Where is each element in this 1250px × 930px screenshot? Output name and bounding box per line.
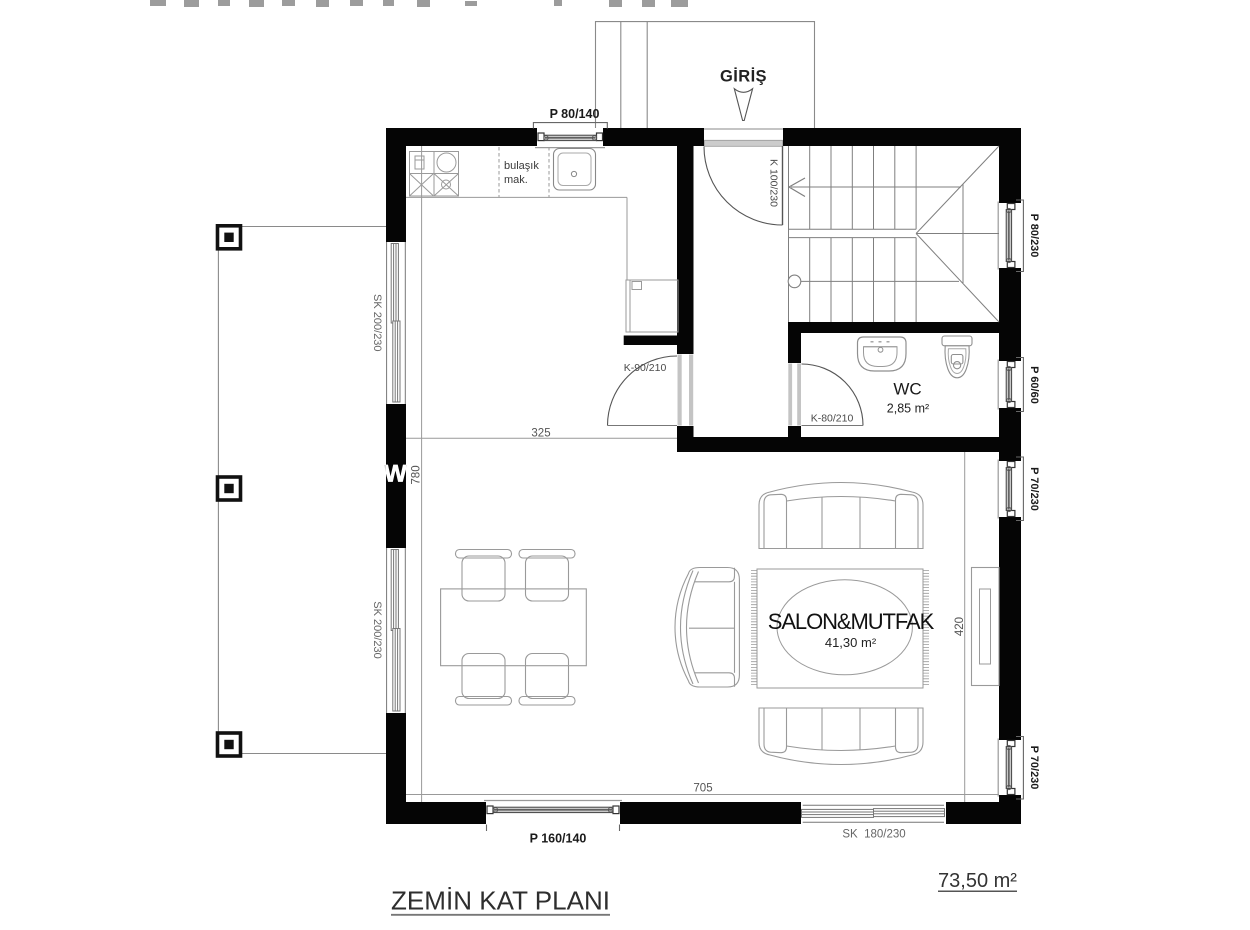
svg-text:K-80/210: K-80/210 xyxy=(811,413,854,425)
svg-text:41,30 m²: 41,30 m² xyxy=(825,635,877,650)
svg-text:SK 200/230: SK 200/230 xyxy=(371,294,383,352)
svg-text:SALON&MUTFAK: SALON&MUTFAK xyxy=(768,609,935,634)
svg-text:GİRİŞ: GİRİŞ xyxy=(720,68,767,86)
svg-text:WC: WC xyxy=(893,380,921,399)
svg-text:mak.: mak. xyxy=(504,174,528,186)
svg-text:325: 325 xyxy=(531,428,550,440)
svg-text:P 70/230: P 70/230 xyxy=(1028,746,1040,790)
svg-text:K 100/230: K 100/230 xyxy=(768,159,780,207)
svg-text:P 80/230: P 80/230 xyxy=(1028,214,1040,258)
svg-text:P 60/60: P 60/60 xyxy=(1028,366,1040,404)
svg-text:bulaşık: bulaşık xyxy=(504,160,539,172)
svg-text:705: 705 xyxy=(693,783,712,795)
svg-text:73,50 m²: 73,50 m² xyxy=(938,870,1017,892)
svg-text:780: 780 xyxy=(411,465,423,484)
svg-text:ZEMİN KAT PLANI: ZEMİN KAT PLANI xyxy=(391,886,610,916)
svg-text:P 160/140: P 160/140 xyxy=(530,832,587,846)
svg-text:P 80/140: P 80/140 xyxy=(550,107,600,121)
svg-text:W: W xyxy=(384,461,407,488)
svg-text:P 70/230: P 70/230 xyxy=(1028,467,1040,511)
svg-text:2,85 m²: 2,85 m² xyxy=(887,402,929,416)
svg-text:SK 180/230: SK 180/230 xyxy=(842,829,905,841)
svg-text:K-90/210: K-90/210 xyxy=(624,362,667,374)
svg-text:420: 420 xyxy=(954,617,966,636)
svg-text:SK 200/230: SK 200/230 xyxy=(371,601,383,659)
